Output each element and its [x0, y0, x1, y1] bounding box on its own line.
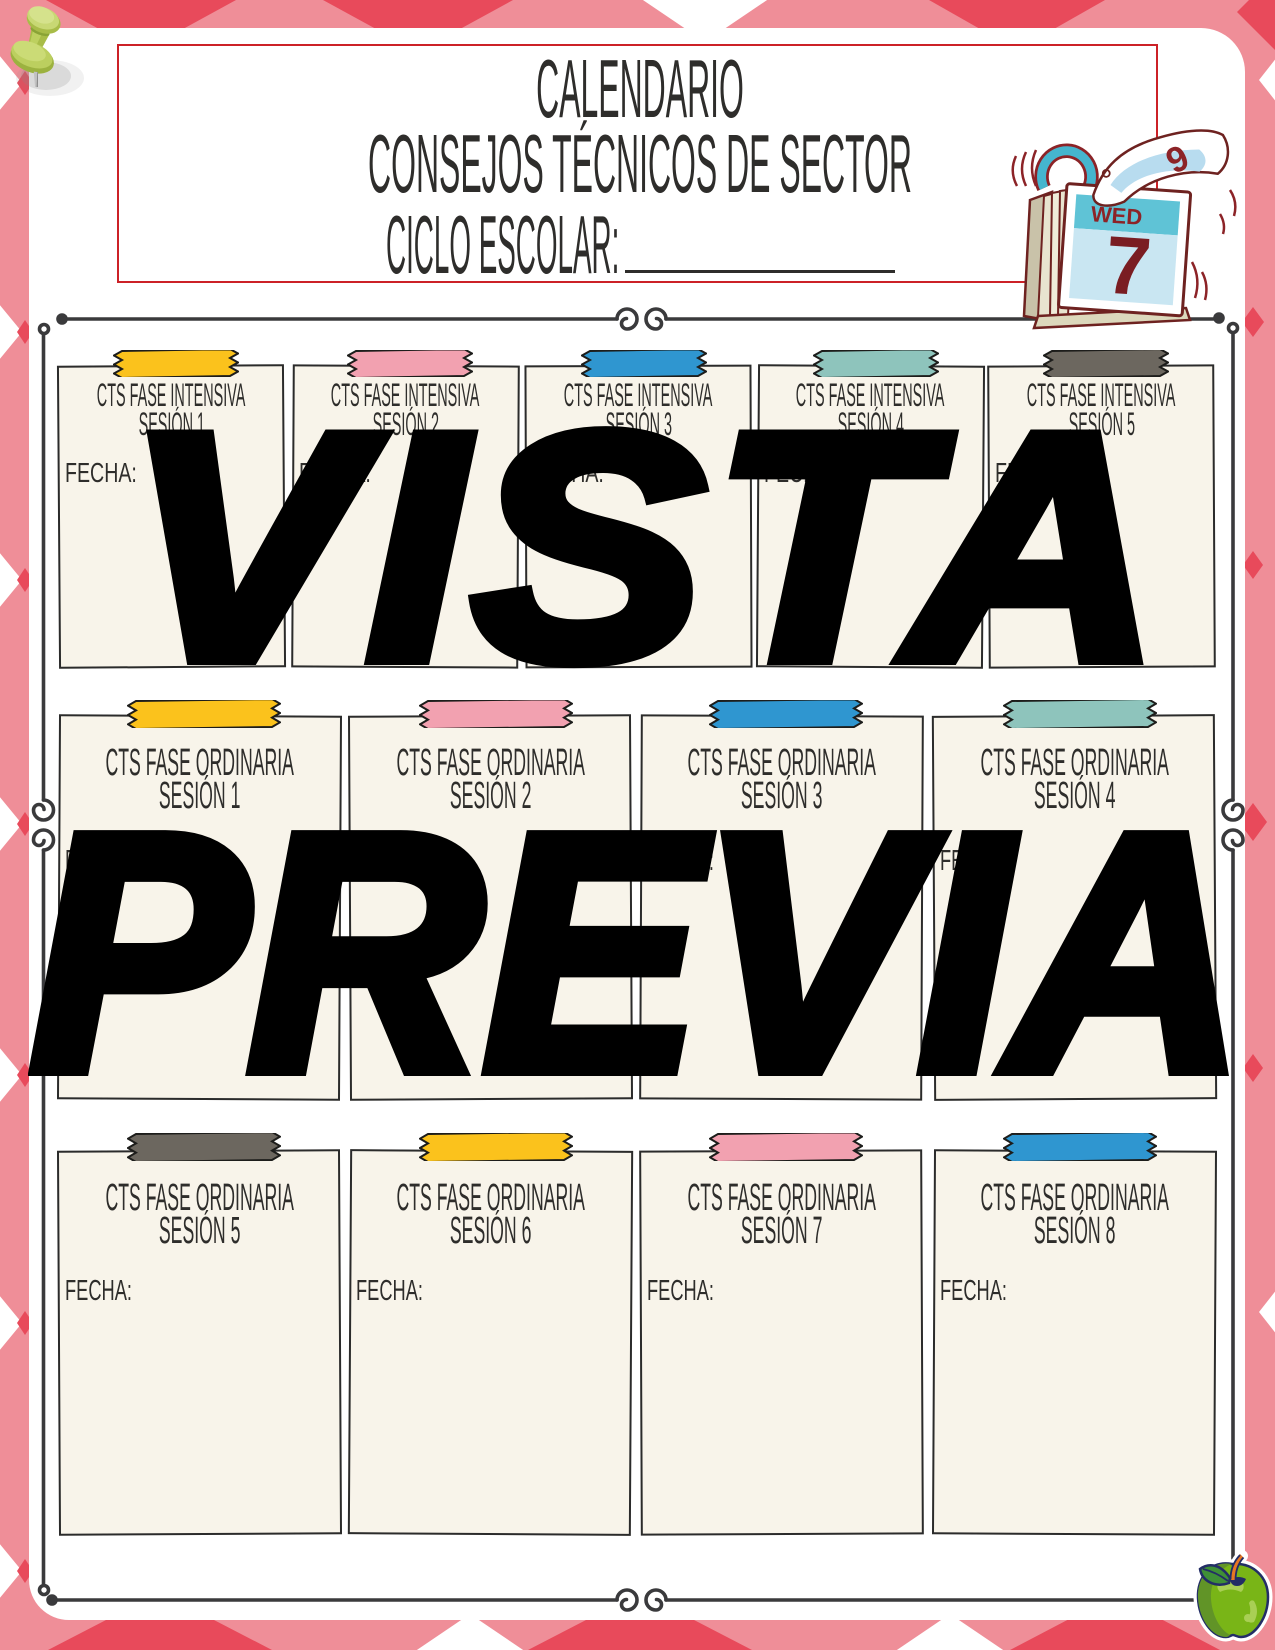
svg-text:7: 7	[1102, 220, 1154, 314]
